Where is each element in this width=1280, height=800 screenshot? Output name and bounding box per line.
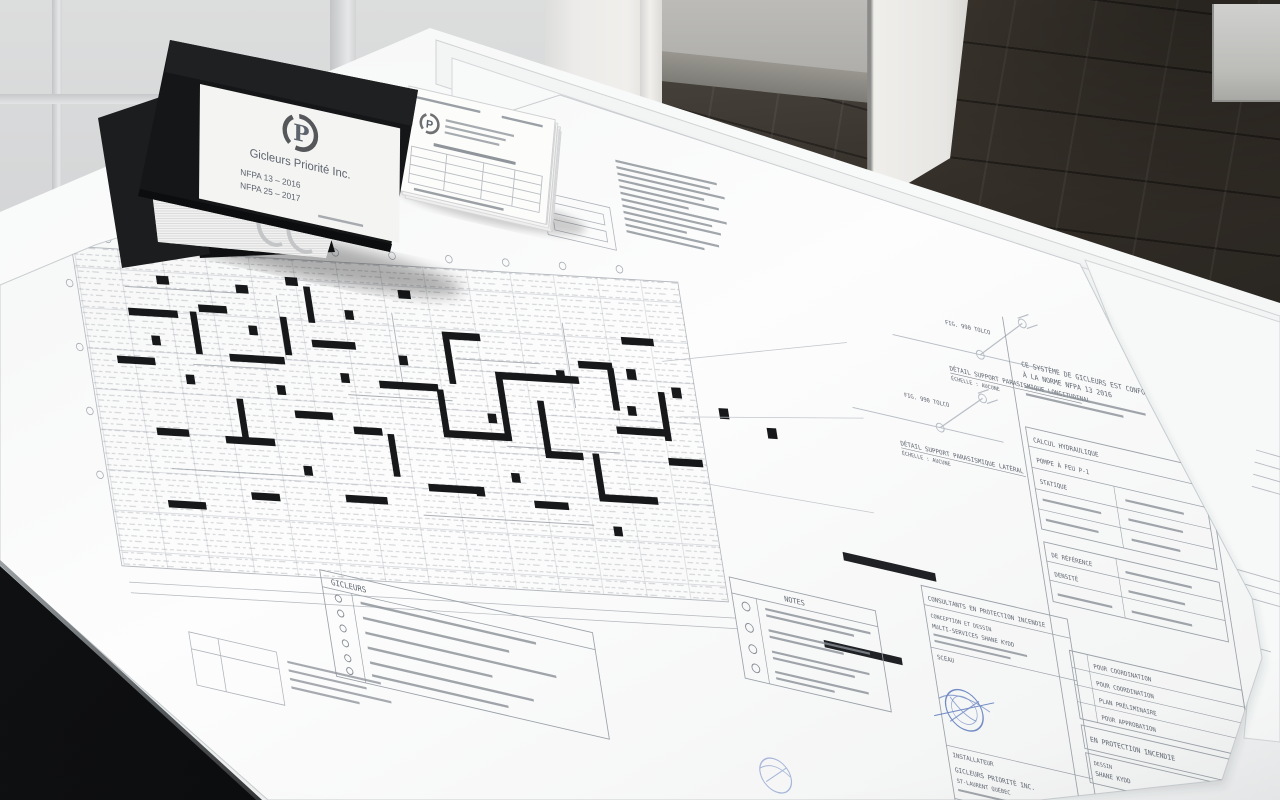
tabletop-artwork: FIG. 990 TOLCO DÉTAIL SUPPORT PARASISMIQ… [0,0,1280,800]
binder-logo-letter: P [293,119,310,149]
document-logo-letter: P [425,118,433,132]
photo-scene: FIG. 990 TOLCO DÉTAIL SUPPORT PARASISMIQ… [0,0,1280,800]
binder: P Gicleurs Priorité Inc. NFPA 13 – 2016 … [98,40,418,268]
